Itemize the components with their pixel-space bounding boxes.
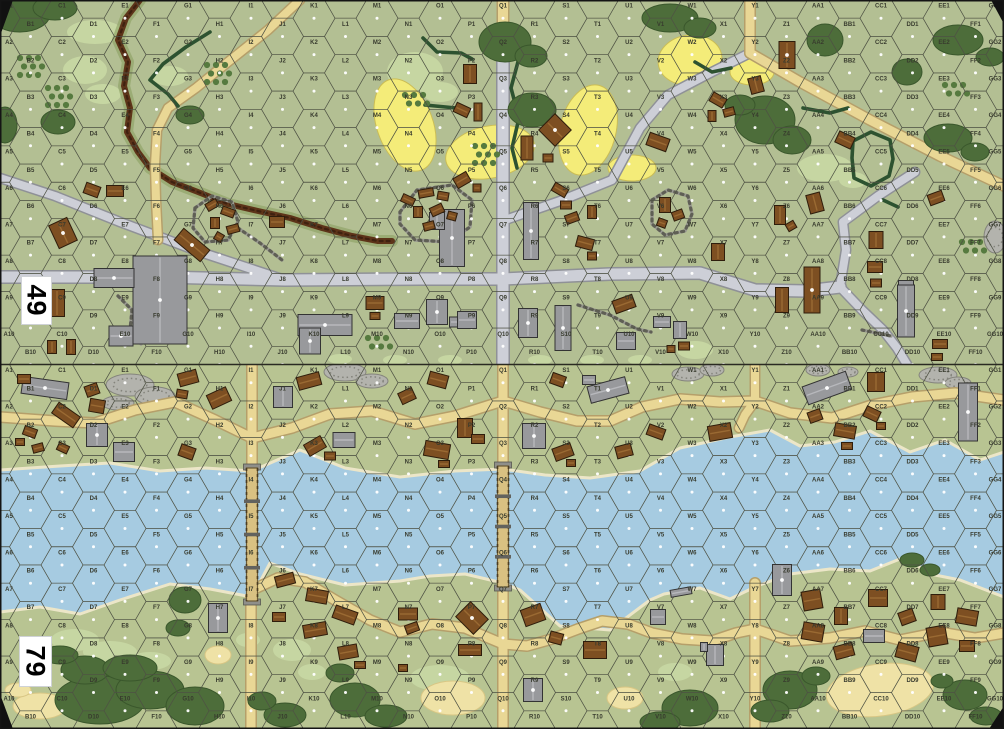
- svg-text:P8: P8: [468, 642, 476, 648]
- svg-text:T5: T5: [594, 532, 602, 538]
- svg-text:G7: G7: [184, 587, 193, 593]
- svg-text:B7: B7: [27, 605, 35, 611]
- svg-text:BB1: BB1: [843, 22, 856, 28]
- svg-text:L1: L1: [342, 22, 350, 28]
- svg-text:H7: H7: [216, 605, 224, 611]
- svg-text:A7: A7: [5, 587, 13, 593]
- svg-text:EE1: EE1: [938, 368, 950, 374]
- svg-text:A8: A8: [5, 259, 13, 265]
- svg-text:BB10: BB10: [842, 350, 858, 356]
- svg-text:M4: M4: [373, 113, 382, 119]
- svg-text:AA10: AA10: [810, 332, 826, 338]
- stone-building: [707, 645, 724, 666]
- svg-text:P6: P6: [468, 569, 476, 575]
- svg-text:O8: O8: [436, 259, 445, 265]
- svg-text:X4: X4: [720, 131, 728, 137]
- svg-text:F7: F7: [153, 241, 161, 247]
- svg-text:G3: G3: [184, 441, 193, 447]
- svg-text:CC6: CC6: [875, 550, 888, 556]
- svg-text:D8: D8: [90, 642, 98, 648]
- svg-text:K1: K1: [310, 4, 318, 10]
- svg-text:L6: L6: [342, 569, 350, 575]
- svg-text:E2: E2: [121, 405, 129, 411]
- svg-text:EE7: EE7: [938, 587, 950, 593]
- svg-text:C9: C9: [58, 295, 66, 301]
- svg-text:F9: F9: [153, 678, 161, 684]
- svg-text:EE9: EE9: [938, 660, 950, 666]
- svg-text:U3: U3: [625, 77, 633, 83]
- board-number-49-text: 49: [23, 284, 50, 316]
- svg-text:Q10: Q10: [497, 332, 509, 338]
- wooden-building: [776, 288, 789, 313]
- svg-text:CC10: CC10: [873, 332, 889, 338]
- svg-text:P5: P5: [468, 532, 476, 538]
- svg-text:J6: J6: [279, 204, 286, 210]
- svg-text:S6: S6: [562, 186, 570, 192]
- svg-text:Z6: Z6: [783, 204, 791, 210]
- svg-text:S4: S4: [562, 478, 570, 484]
- svg-text:P1: P1: [468, 386, 476, 392]
- svg-text:H6: H6: [216, 204, 224, 210]
- svg-text:D2: D2: [90, 423, 98, 429]
- svg-text:O6: O6: [436, 550, 445, 556]
- svg-text:EE8: EE8: [938, 623, 950, 629]
- svg-text:R10: R10: [529, 715, 541, 721]
- svg-text:EE7: EE7: [938, 222, 950, 228]
- svg-text:AA6: AA6: [812, 186, 825, 192]
- svg-text:Q7: Q7: [499, 222, 508, 228]
- svg-text:C3: C3: [58, 441, 66, 447]
- svg-text:B2: B2: [27, 423, 35, 429]
- svg-text:BB8: BB8: [843, 642, 856, 648]
- svg-text:M3: M3: [373, 441, 382, 447]
- svg-text:AA3: AA3: [812, 77, 825, 83]
- svg-text:K10: K10: [308, 696, 320, 702]
- wooden-building: [521, 136, 533, 160]
- svg-text:W7: W7: [688, 222, 698, 228]
- svg-text:Y4: Y4: [751, 478, 759, 484]
- svg-text:H4: H4: [216, 496, 224, 502]
- svg-text:V8: V8: [657, 642, 665, 648]
- svg-text:EE3: EE3: [938, 77, 950, 83]
- svg-text:CC6: CC6: [875, 186, 888, 192]
- svg-text:V6: V6: [657, 569, 665, 575]
- svg-text:J8: J8: [279, 277, 286, 283]
- svg-text:U6: U6: [625, 550, 633, 556]
- svg-text:DD10: DD10: [905, 350, 921, 356]
- svg-text:P9: P9: [468, 314, 476, 320]
- svg-text:Z2: Z2: [783, 423, 791, 429]
- svg-text:N2: N2: [405, 423, 413, 429]
- svg-text:T3: T3: [594, 95, 602, 101]
- svg-text:K3: K3: [310, 441, 318, 447]
- svg-text:L2: L2: [342, 58, 350, 64]
- svg-text:GG4: GG4: [989, 113, 1002, 119]
- svg-text:GG1: GG1: [989, 368, 1002, 374]
- svg-text:Q1: Q1: [499, 4, 508, 10]
- svg-text:FF6: FF6: [970, 569, 981, 575]
- wooden-building: [414, 207, 423, 218]
- svg-text:F2: F2: [153, 423, 161, 429]
- svg-text:F8: F8: [153, 642, 161, 648]
- svg-text:BB9: BB9: [843, 678, 856, 684]
- svg-text:FF2: FF2: [970, 423, 981, 429]
- svg-text:DD7: DD7: [906, 241, 919, 247]
- svg-text:U2: U2: [625, 405, 633, 411]
- svg-text:Y6: Y6: [751, 550, 759, 556]
- svg-text:A5: A5: [5, 514, 13, 520]
- svg-text:FF9: FF9: [970, 678, 981, 684]
- wooden-building: [447, 211, 458, 221]
- svg-text:A5: A5: [5, 150, 13, 156]
- svg-text:F8: F8: [153, 277, 161, 283]
- svg-text:BB2: BB2: [843, 58, 856, 64]
- svg-text:GG2: GG2: [989, 405, 1002, 411]
- stone-building: [555, 306, 571, 351]
- stone-building: [674, 322, 687, 339]
- svg-text:GG3: GG3: [989, 441, 1002, 447]
- svg-text:Q9: Q9: [499, 660, 508, 666]
- svg-text:FF7: FF7: [970, 605, 981, 611]
- map-svg[interactable]: A1A2A3A4A5A6A7A8A9A10B1B2B3B4B5B6B7B8B9B…: [0, 0, 1004, 729]
- svg-text:E4: E4: [121, 478, 129, 484]
- svg-text:R3: R3: [531, 459, 539, 465]
- svg-text:O1: O1: [436, 368, 445, 374]
- svg-text:R2: R2: [531, 423, 539, 429]
- svg-text:Q6: Q6: [499, 550, 508, 556]
- svg-text:P8: P8: [468, 277, 476, 283]
- svg-text:V5: V5: [657, 168, 665, 174]
- svg-text:BB8: BB8: [843, 277, 856, 283]
- svg-text:K7: K7: [310, 222, 318, 228]
- svg-text:M10: M10: [371, 332, 383, 338]
- svg-text:Y5: Y5: [751, 514, 759, 520]
- svg-text:C7: C7: [58, 587, 66, 593]
- svg-text:N4: N4: [405, 131, 413, 137]
- svg-text:K8: K8: [310, 259, 318, 265]
- svg-text:X9: X9: [720, 678, 728, 684]
- stone-building: [133, 256, 187, 344]
- svg-text:CC5: CC5: [875, 150, 888, 156]
- svg-text:J5: J5: [279, 532, 286, 538]
- svg-text:T2: T2: [594, 58, 602, 64]
- wooden-building: [667, 346, 675, 353]
- svg-text:X3: X3: [720, 95, 728, 101]
- svg-text:CC2: CC2: [875, 40, 888, 46]
- svg-text:B5: B5: [27, 532, 35, 538]
- svg-text:K8: K8: [310, 623, 318, 629]
- svg-text:N5: N5: [405, 168, 413, 174]
- svg-text:J4: J4: [279, 131, 286, 137]
- svg-text:GG5: GG5: [989, 150, 1002, 156]
- svg-text:DD9: DD9: [906, 314, 919, 320]
- svg-text:R9: R9: [531, 314, 539, 320]
- svg-text:FF5: FF5: [970, 168, 981, 174]
- board-79-area: A1A2A3A4A5A6A7A8A9A10B1B2B3B4B5B6B7B8B9B…: [0, 346, 1004, 729]
- svg-text:AA2: AA2: [812, 40, 825, 46]
- svg-text:T6: T6: [594, 569, 602, 575]
- svg-text:S3: S3: [562, 77, 570, 83]
- board-number-79: 79: [19, 636, 52, 687]
- svg-text:E7: E7: [121, 587, 129, 593]
- svg-text:E3: E3: [121, 441, 129, 447]
- svg-text:L2: L2: [342, 423, 350, 429]
- svg-text:AA5: AA5: [812, 150, 825, 156]
- svg-text:B7: B7: [27, 241, 35, 247]
- svg-text:AA7: AA7: [812, 587, 825, 593]
- wooden-building: [679, 342, 690, 350]
- wooden-building: [871, 279, 882, 287]
- svg-text:W10: W10: [686, 332, 699, 338]
- svg-text:D3: D3: [90, 95, 98, 101]
- svg-text:EE6: EE6: [938, 550, 950, 556]
- svg-text:W6: W6: [688, 186, 698, 192]
- svg-text:S7: S7: [562, 587, 570, 593]
- svg-text:B1: B1: [27, 386, 35, 392]
- svg-text:P4: P4: [468, 496, 476, 502]
- svg-text:J3: J3: [279, 459, 286, 465]
- svg-text:N8: N8: [405, 277, 413, 283]
- svg-text:Q6: Q6: [499, 186, 508, 192]
- svg-text:M8: M8: [373, 623, 382, 629]
- svg-text:A7: A7: [5, 222, 13, 228]
- svg-text:FF4: FF4: [970, 496, 981, 502]
- svg-text:O5: O5: [436, 514, 445, 520]
- svg-text:N5: N5: [405, 532, 413, 538]
- svg-text:CC10: CC10: [873, 696, 889, 702]
- svg-text:B6: B6: [27, 569, 35, 575]
- svg-text:N6: N6: [405, 569, 413, 575]
- svg-text:Z8: Z8: [783, 642, 791, 648]
- svg-text:D7: D7: [90, 605, 98, 611]
- svg-text:BB4: BB4: [843, 131, 856, 137]
- svg-text:I5: I5: [248, 514, 254, 520]
- svg-text:O10: O10: [434, 332, 446, 338]
- svg-text:P9: P9: [468, 678, 476, 684]
- svg-text:FF5: FF5: [970, 532, 981, 538]
- svg-text:N1: N1: [405, 22, 413, 28]
- svg-text:GG5: GG5: [989, 514, 1002, 520]
- svg-text:J7: J7: [279, 605, 286, 611]
- svg-text:W4: W4: [688, 113, 698, 119]
- svg-text:E3: E3: [121, 77, 129, 83]
- stone-building: [583, 376, 596, 385]
- svg-text:P3: P3: [468, 459, 476, 465]
- svg-text:FF8: FF8: [970, 277, 981, 283]
- svg-text:R2: R2: [531, 58, 539, 64]
- svg-text:S9: S9: [562, 295, 570, 301]
- svg-text:G7: G7: [184, 222, 193, 228]
- wooden-building: [464, 65, 477, 84]
- svg-text:O2: O2: [436, 40, 445, 46]
- svg-text:E7: E7: [121, 222, 129, 228]
- svg-text:U5: U5: [625, 150, 633, 156]
- svg-text:D2: D2: [90, 58, 98, 64]
- svg-text:F3: F3: [153, 459, 161, 465]
- svg-text:U4: U4: [625, 113, 633, 119]
- svg-text:I8: I8: [248, 623, 254, 629]
- svg-text:P1: P1: [468, 22, 476, 28]
- svg-text:I7: I7: [248, 222, 254, 228]
- svg-text:E8: E8: [121, 259, 129, 265]
- svg-text:AA3: AA3: [812, 441, 825, 447]
- wooden-building: [211, 218, 220, 229]
- svg-text:AA8: AA8: [812, 259, 825, 265]
- wooden-building: [18, 375, 31, 384]
- svg-text:H4: H4: [216, 131, 224, 137]
- svg-text:A8: A8: [5, 623, 13, 629]
- svg-text:A4: A4: [5, 478, 13, 484]
- svg-text:S10: S10: [561, 696, 572, 702]
- svg-text:W8: W8: [688, 259, 698, 265]
- svg-text:DD2: DD2: [906, 58, 919, 64]
- svg-text:D4: D4: [90, 496, 98, 502]
- svg-text:EE5: EE5: [938, 150, 950, 156]
- svg-text:J3: J3: [279, 95, 286, 101]
- svg-text:X1: X1: [720, 386, 728, 392]
- svg-text:V7: V7: [657, 605, 665, 611]
- svg-text:U1: U1: [625, 368, 633, 374]
- svg-text:I9: I9: [248, 660, 254, 666]
- svg-text:EE5: EE5: [938, 514, 950, 520]
- svg-text:H7: H7: [216, 241, 224, 247]
- svg-text:S2: S2: [562, 40, 570, 46]
- svg-text:T9: T9: [594, 678, 602, 684]
- wooden-building: [439, 461, 450, 468]
- svg-text:I1: I1: [248, 368, 254, 374]
- svg-text:K9: K9: [310, 660, 318, 666]
- svg-text:C2: C2: [58, 40, 66, 46]
- svg-text:CC7: CC7: [875, 587, 888, 593]
- svg-text:Y3: Y3: [751, 77, 759, 83]
- svg-text:I10: I10: [247, 332, 256, 338]
- svg-text:DD8: DD8: [906, 277, 919, 283]
- svg-text:O8: O8: [436, 623, 445, 629]
- svg-text:F9: F9: [153, 314, 161, 320]
- svg-text:O7: O7: [436, 587, 445, 593]
- svg-text:V3: V3: [657, 459, 665, 465]
- svg-text:F10: F10: [151, 350, 162, 356]
- svg-text:T6: T6: [594, 204, 602, 210]
- svg-text:Z10: Z10: [781, 715, 792, 721]
- svg-text:Y7: Y7: [751, 587, 759, 593]
- svg-text:FF4: FF4: [970, 131, 981, 137]
- svg-text:I6: I6: [248, 550, 254, 556]
- svg-text:Y1: Y1: [751, 4, 759, 10]
- svg-text:DD10: DD10: [905, 715, 921, 721]
- svg-text:BB2: BB2: [843, 423, 856, 429]
- svg-text:EE6: EE6: [938, 186, 950, 192]
- svg-text:W1: W1: [688, 368, 698, 374]
- svg-text:M1: M1: [373, 4, 382, 10]
- svg-text:B4: B4: [27, 496, 35, 502]
- svg-text:C10: C10: [56, 696, 68, 702]
- svg-text:K4: K4: [310, 478, 318, 484]
- svg-text:M2: M2: [373, 405, 382, 411]
- svg-text:L7: L7: [342, 241, 350, 247]
- svg-text:Q8: Q8: [499, 623, 508, 629]
- svg-text:G10: G10: [182, 332, 194, 338]
- svg-text:U8: U8: [625, 623, 633, 629]
- svg-text:GG9: GG9: [989, 295, 1002, 301]
- wooden-building: [708, 111, 716, 122]
- svg-text:I4: I4: [248, 113, 254, 119]
- svg-text:DD7: DD7: [906, 605, 919, 611]
- svg-text:T3: T3: [594, 459, 602, 465]
- svg-text:T1: T1: [594, 386, 602, 392]
- svg-text:A1: A1: [5, 368, 13, 374]
- svg-text:D6: D6: [90, 569, 98, 575]
- svg-text:AA4: AA4: [812, 113, 825, 119]
- wooden-building: [804, 267, 820, 313]
- svg-text:E1: E1: [121, 368, 129, 374]
- svg-text:I10: I10: [247, 696, 256, 702]
- svg-text:T2: T2: [594, 423, 602, 429]
- svg-text:E10: E10: [120, 696, 131, 702]
- svg-text:B3: B3: [27, 95, 35, 101]
- stone-building: [864, 630, 885, 643]
- svg-text:C6: C6: [58, 550, 66, 556]
- svg-text:Z5: Z5: [783, 168, 791, 174]
- svg-text:J10: J10: [277, 715, 288, 721]
- svg-text:EE10: EE10: [937, 696, 952, 702]
- svg-text:W1: W1: [688, 4, 698, 10]
- svg-text:Y1: Y1: [751, 368, 759, 374]
- svg-text:I2: I2: [248, 405, 254, 411]
- wooden-building: [472, 435, 485, 444]
- svg-text:CC7: CC7: [875, 222, 888, 228]
- svg-text:D9: D9: [90, 314, 98, 320]
- stone-building: [701, 643, 708, 652]
- svg-text:FF1: FF1: [970, 22, 981, 28]
- svg-text:FF6: FF6: [970, 204, 981, 210]
- svg-text:Y3: Y3: [751, 441, 759, 447]
- svg-text:CC5: CC5: [875, 514, 888, 520]
- svg-text:Y4: Y4: [751, 113, 759, 119]
- wooden-building: [877, 423, 886, 430]
- svg-text:U7: U7: [625, 222, 633, 228]
- svg-text:W4: W4: [688, 478, 698, 484]
- wooden-building: [842, 443, 853, 450]
- svg-text:CC9: CC9: [875, 295, 888, 301]
- svg-text:P10: P10: [466, 350, 477, 356]
- svg-text:I6: I6: [248, 186, 254, 192]
- svg-text:T7: T7: [594, 241, 602, 247]
- svg-text:S5: S5: [562, 150, 570, 156]
- svg-text:I1: I1: [248, 4, 254, 10]
- svg-text:P6: P6: [468, 204, 476, 210]
- svg-text:EE2: EE2: [938, 40, 950, 46]
- svg-text:BB5: BB5: [843, 168, 856, 174]
- svg-text:GG7: GG7: [989, 587, 1002, 593]
- svg-text:FF3: FF3: [970, 459, 981, 465]
- svg-text:CC9: CC9: [875, 660, 888, 666]
- svg-text:GG10: GG10: [987, 332, 1004, 338]
- svg-text:F10: F10: [151, 715, 162, 721]
- svg-text:C10: C10: [56, 332, 68, 338]
- svg-text:AA1: AA1: [812, 368, 825, 374]
- svg-text:GG3: GG3: [989, 77, 1002, 83]
- svg-text:I3: I3: [248, 441, 254, 447]
- svg-text:O1: O1: [436, 4, 445, 10]
- svg-text:X7: X7: [720, 241, 728, 247]
- svg-text:M9: M9: [373, 295, 382, 301]
- svg-text:C4: C4: [58, 478, 66, 484]
- svg-text:G1: G1: [184, 368, 193, 374]
- svg-text:O7: O7: [436, 222, 445, 228]
- svg-text:Z5: Z5: [783, 532, 791, 538]
- svg-text:R8: R8: [531, 277, 539, 283]
